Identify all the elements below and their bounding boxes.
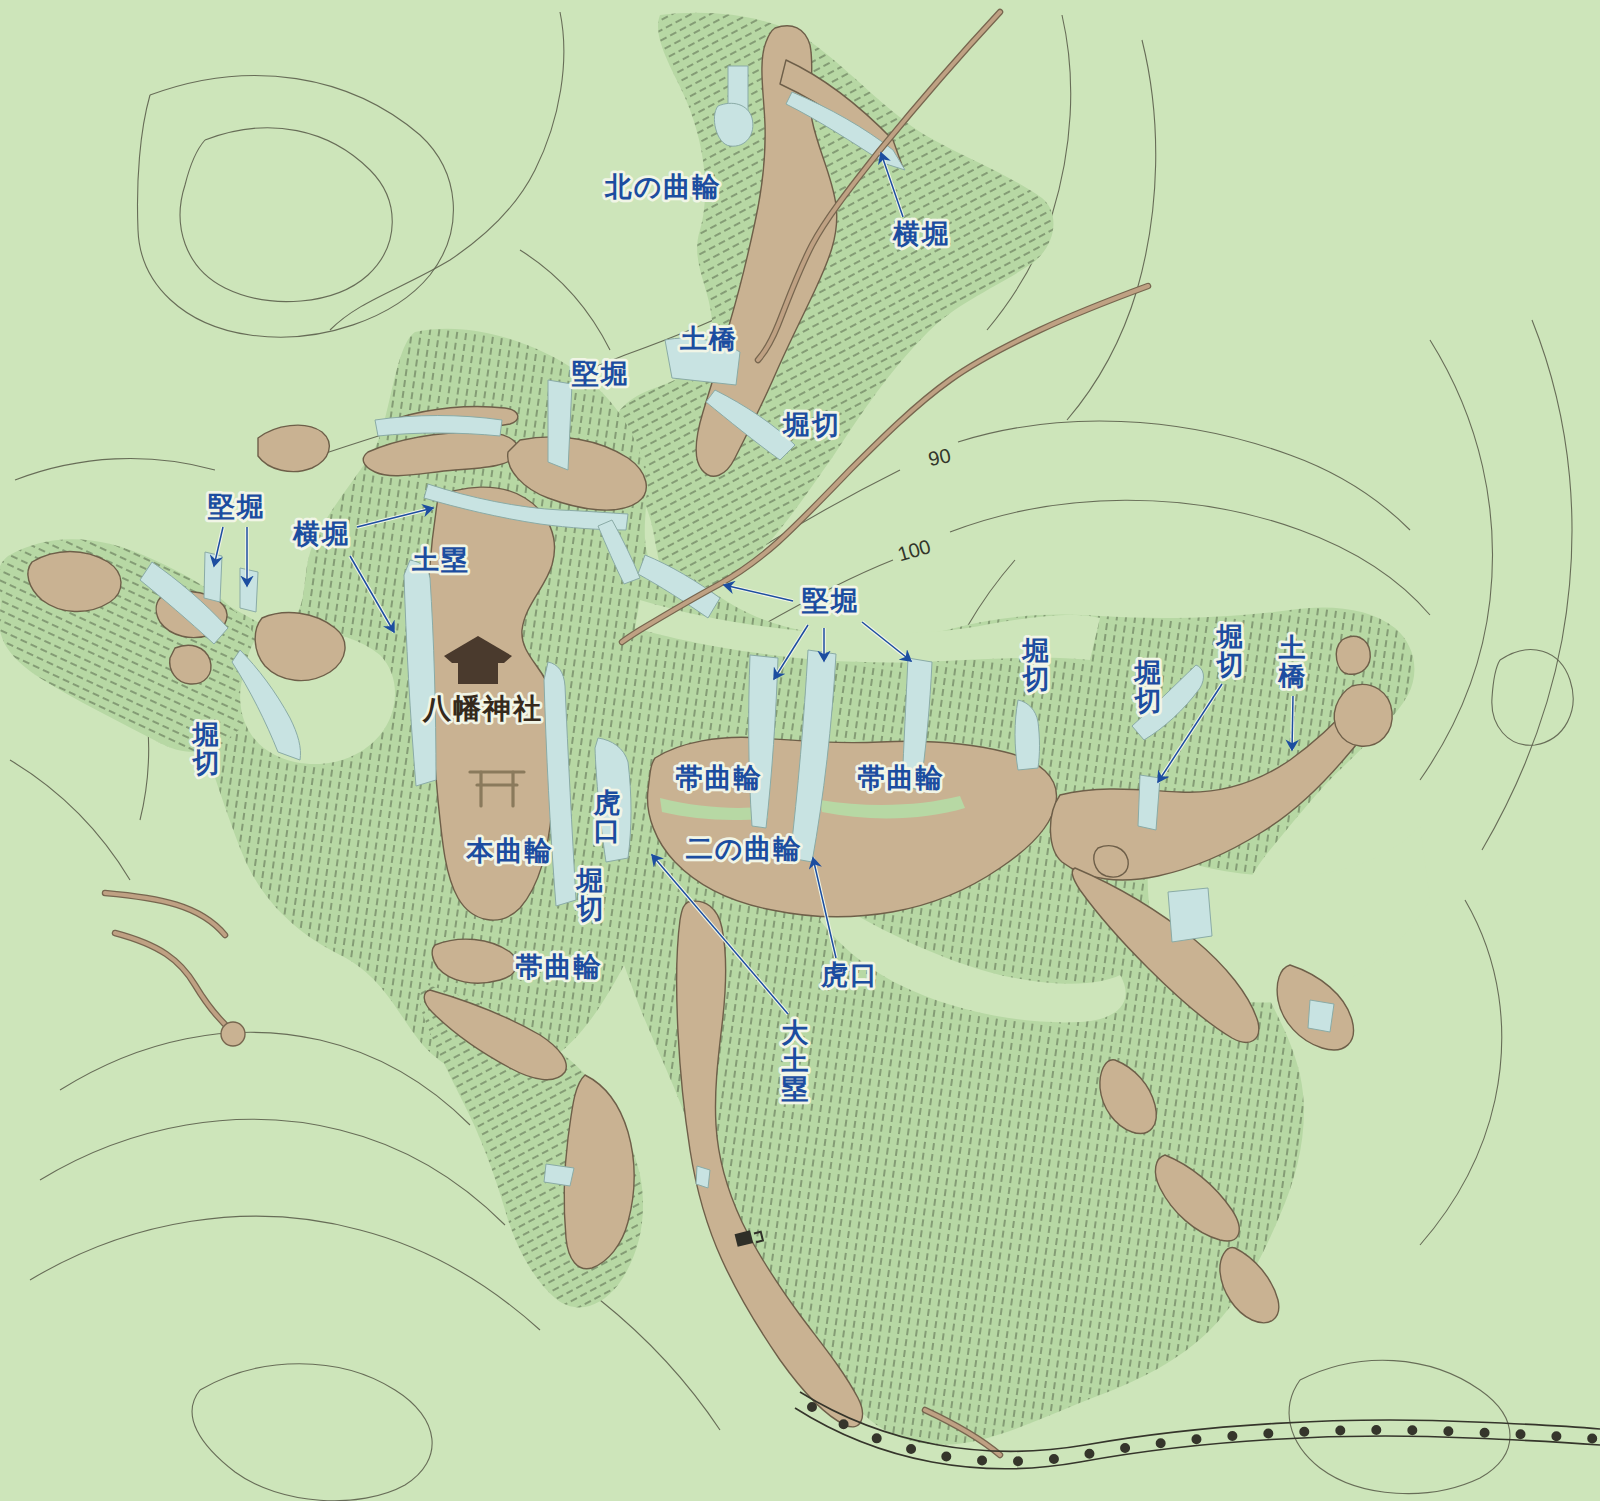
map-label-dai-dorui: 大土塁: [781, 1018, 811, 1104]
map-label-yokobori-north: 横堀: [892, 219, 951, 249]
map-label-tatebori-north: 堅堀: [571, 359, 630, 389]
map-label-horikiri-north: 堀切: [781, 410, 841, 440]
map-label-contour-90: 90: [926, 444, 952, 470]
map-label-dobashi-east: 土橋: [1278, 633, 1308, 691]
map-label-koguchi-center: 虎口: [593, 788, 623, 846]
map-label-ni-no-kuruwa: 二の曲輪: [686, 834, 803, 864]
map-label-hon-kuruwa: 本曲輪: [466, 836, 554, 866]
map-label-horikiri-east2: 堀切: [1133, 658, 1164, 716]
arrow-dobashi-east-10: [1292, 696, 1293, 750]
map-label-tatebori-west: 堅堀: [207, 492, 266, 522]
map-label-dorui-west: 土塁: [411, 545, 470, 575]
map-label-dobashi-north: 土橋: [679, 324, 738, 354]
map-label-hachiman-jinja: 八幡神社: [422, 693, 543, 724]
map-label-horikiri-west: 堀切: [191, 720, 222, 778]
castle-map: 北の曲輪横堀土橋堅堀堀切堅堀横堀土塁堀切八幡神社本曲輪虎口堀切堅堀帯曲輪帯曲輪二…: [0, 0, 1600, 1501]
map-label-kita-no-kuruwa: 北の曲輪: [604, 172, 722, 202]
map-canvas: 北の曲輪横堀土橋堅堀堀切堅堀横堀土塁堀切八幡神社本曲輪虎口堀切堅堀帯曲輪帯曲輪二…: [0, 0, 1600, 1501]
map-label-obi-kuruwa-left: 帯曲輪: [676, 763, 763, 793]
map-label-tatebori-center: 堅堀: [801, 586, 860, 616]
map-label-obi-kuruwa-south: 帯曲輪: [516, 952, 603, 982]
map-label-koguchi-south: 虎口: [820, 960, 879, 990]
map-label-horikiri-east1: 堀切: [1021, 636, 1052, 694]
map-label-obi-kuruwa-right: 帯曲輪: [858, 763, 945, 793]
map-label-horikiri-east3: 堀切: [1215, 622, 1246, 680]
map-label-horikiri-center: 堀切: [575, 866, 606, 924]
map-label-yokobori-west: 横堀: [292, 519, 351, 549]
